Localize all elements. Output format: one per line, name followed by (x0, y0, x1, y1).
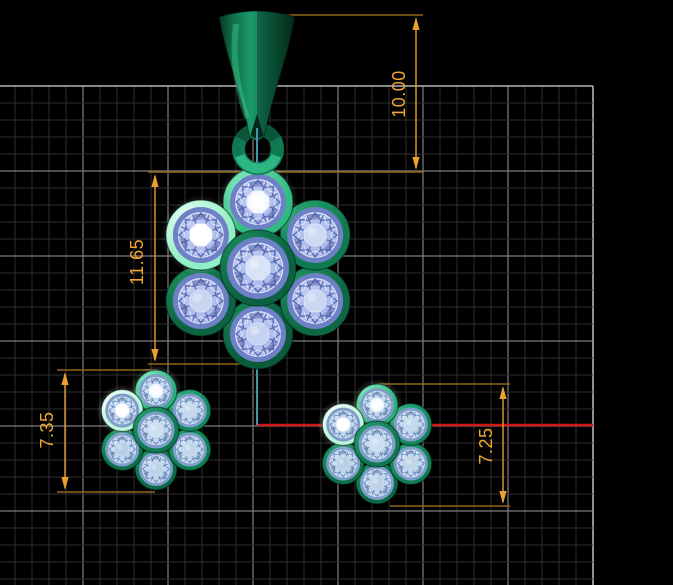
gem-facets (287, 273, 343, 329)
dimension-label: 7.25 (476, 427, 496, 464)
gem-facets (359, 426, 396, 463)
gem-facets (173, 273, 229, 329)
dimension-label: 11.65 (127, 239, 147, 285)
gem-facets (138, 412, 175, 449)
left-earring-stone-center[interactable] (133, 407, 179, 453)
gem-facets (227, 237, 289, 299)
gem-facets (173, 207, 229, 263)
gem-facets (139, 452, 173, 486)
cad-viewport: 10.0011.657.357.25 (0, 0, 673, 585)
scene-svg: 10.0011.657.357.25 (0, 0, 673, 585)
pendant-stone-center[interactable] (220, 230, 296, 306)
dimension-label: 10.00 (389, 70, 409, 118)
gem-facets (360, 466, 394, 500)
right-earring-stone-center[interactable] (354, 421, 400, 467)
dimension-label: 7.35 (37, 411, 57, 448)
gem-facets (230, 306, 286, 362)
